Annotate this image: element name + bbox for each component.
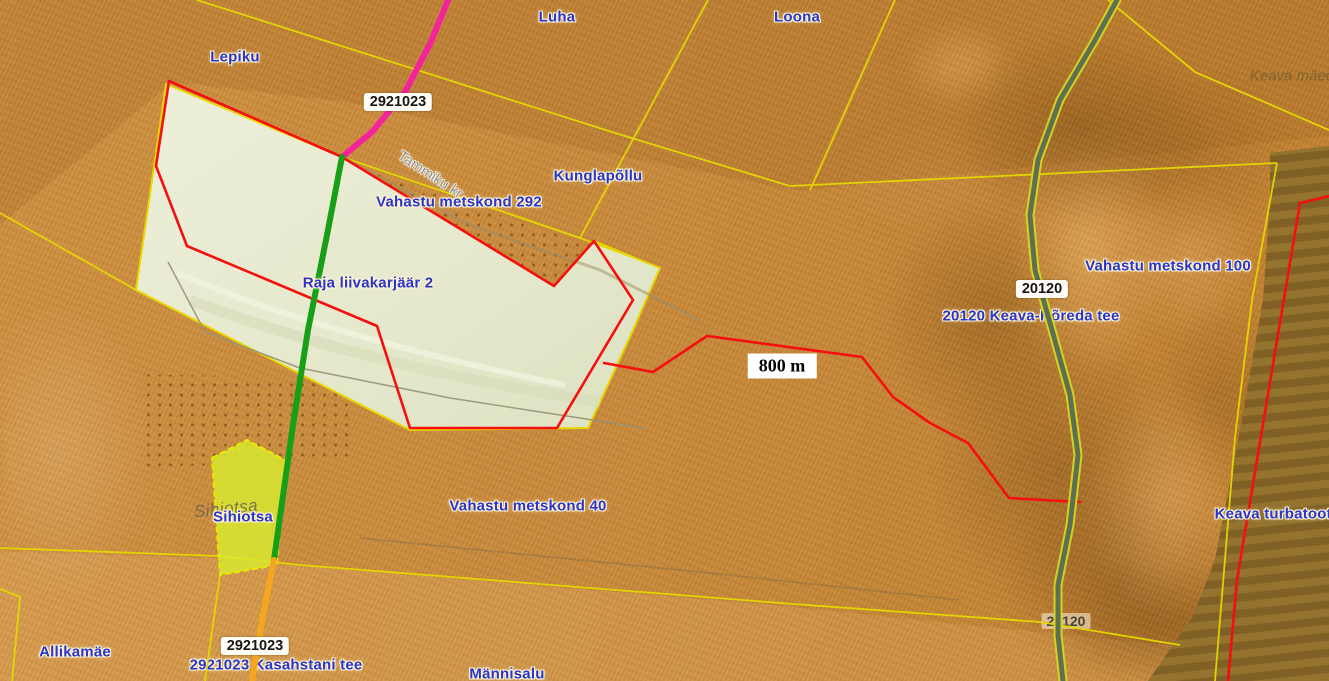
label-raja-liivakarjaar-2: Raja liivakarjäär 2 xyxy=(303,275,434,292)
label-lepiku: Lepiku xyxy=(210,49,260,66)
road-number-badge-2921023-bottom: 2921023 xyxy=(221,637,289,655)
road-number-badge-20120: 20120 xyxy=(1016,280,1068,298)
label-kunglapollu: Kunglapõllu xyxy=(554,168,643,185)
road-number-badge-2921023-top: 2921023 xyxy=(364,93,432,111)
label-vahastu-metskond-100: Vahastu metskond 100 xyxy=(1085,258,1251,275)
label-sihiotsa: Sihiotsa xyxy=(213,509,273,526)
label-sihiotsa-terrain: Sihiotsa xyxy=(193,496,259,523)
map-labels: LepikuLuhaLoonaKunglapõlluVahastu metsko… xyxy=(0,0,1329,681)
map-canvas[interactable]: 20120 Keava-Hõreda tee2921023 Kasahstani… xyxy=(0,0,1329,681)
label-keava-maed: Keava mäed xyxy=(1250,68,1329,85)
distance-annotation-800m: 800 m xyxy=(748,354,817,379)
label-allikamae: Allikamäe xyxy=(39,644,111,661)
label-loona: Loona xyxy=(774,9,820,26)
label-tammiku-kr: Tammiku kr xyxy=(395,148,466,202)
label-vahastu-metskond-40: Vahastu metskond 40 xyxy=(449,498,606,515)
label-keava-turbatootmisala: Keava turbatootm xyxy=(1215,506,1329,523)
label-vahastu-metskond-292: Vahastu metskond 292 xyxy=(376,194,542,211)
label-mannisalu: Männisalu xyxy=(469,666,544,681)
label-luha: Luha xyxy=(539,9,576,26)
